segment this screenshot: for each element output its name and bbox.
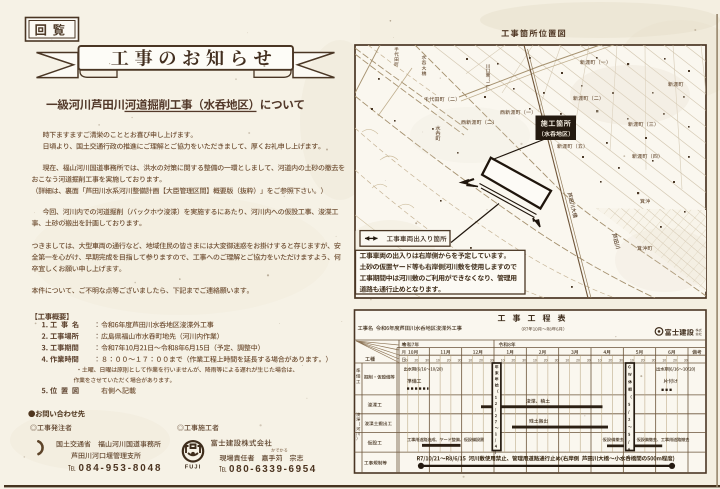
svg-text:30: 30: [522, 358, 526, 362]
svg-text:20: 20: [511, 358, 515, 362]
svg-text:30: 30: [458, 358, 462, 362]
svg-text:084-953-8048: 084-953-8048: [79, 463, 163, 474]
svg-text:10: 10: [468, 358, 472, 362]
svg-text:20: 20: [544, 358, 548, 362]
svg-text:10: 10: [404, 358, 408, 362]
svg-text:10: 10: [598, 358, 602, 362]
svg-text:30: 30: [425, 358, 429, 362]
svg-text:20: 20: [641, 358, 645, 362]
svg-text:30: 30: [490, 358, 494, 362]
svg-text:20: 20: [608, 358, 612, 362]
svg-text:30: 30: [587, 358, 591, 362]
svg-text:30: 30: [684, 358, 688, 362]
svg-text:20: 20: [447, 358, 451, 362]
svg-text:20: 20: [576, 358, 580, 362]
svg-text:30: 30: [652, 358, 656, 362]
svg-text:20: 20: [673, 358, 677, 362]
svg-text:30: 30: [619, 358, 623, 362]
svg-text:10: 10: [565, 358, 569, 362]
svg-text:10: 10: [436, 358, 440, 362]
svg-text:20: 20: [479, 358, 483, 362]
svg-text:10: 10: [501, 358, 505, 362]
svg-text:10: 10: [533, 358, 537, 362]
svg-text:080-6339-6954: 080-6339-6954: [229, 464, 317, 475]
svg-text:FUJI: FUJI: [185, 465, 202, 471]
svg-text:10: 10: [630, 358, 634, 362]
svg-text:10: 10: [662, 358, 666, 362]
svg-text:20: 20: [414, 358, 418, 362]
svg-text:30: 30: [555, 358, 559, 362]
